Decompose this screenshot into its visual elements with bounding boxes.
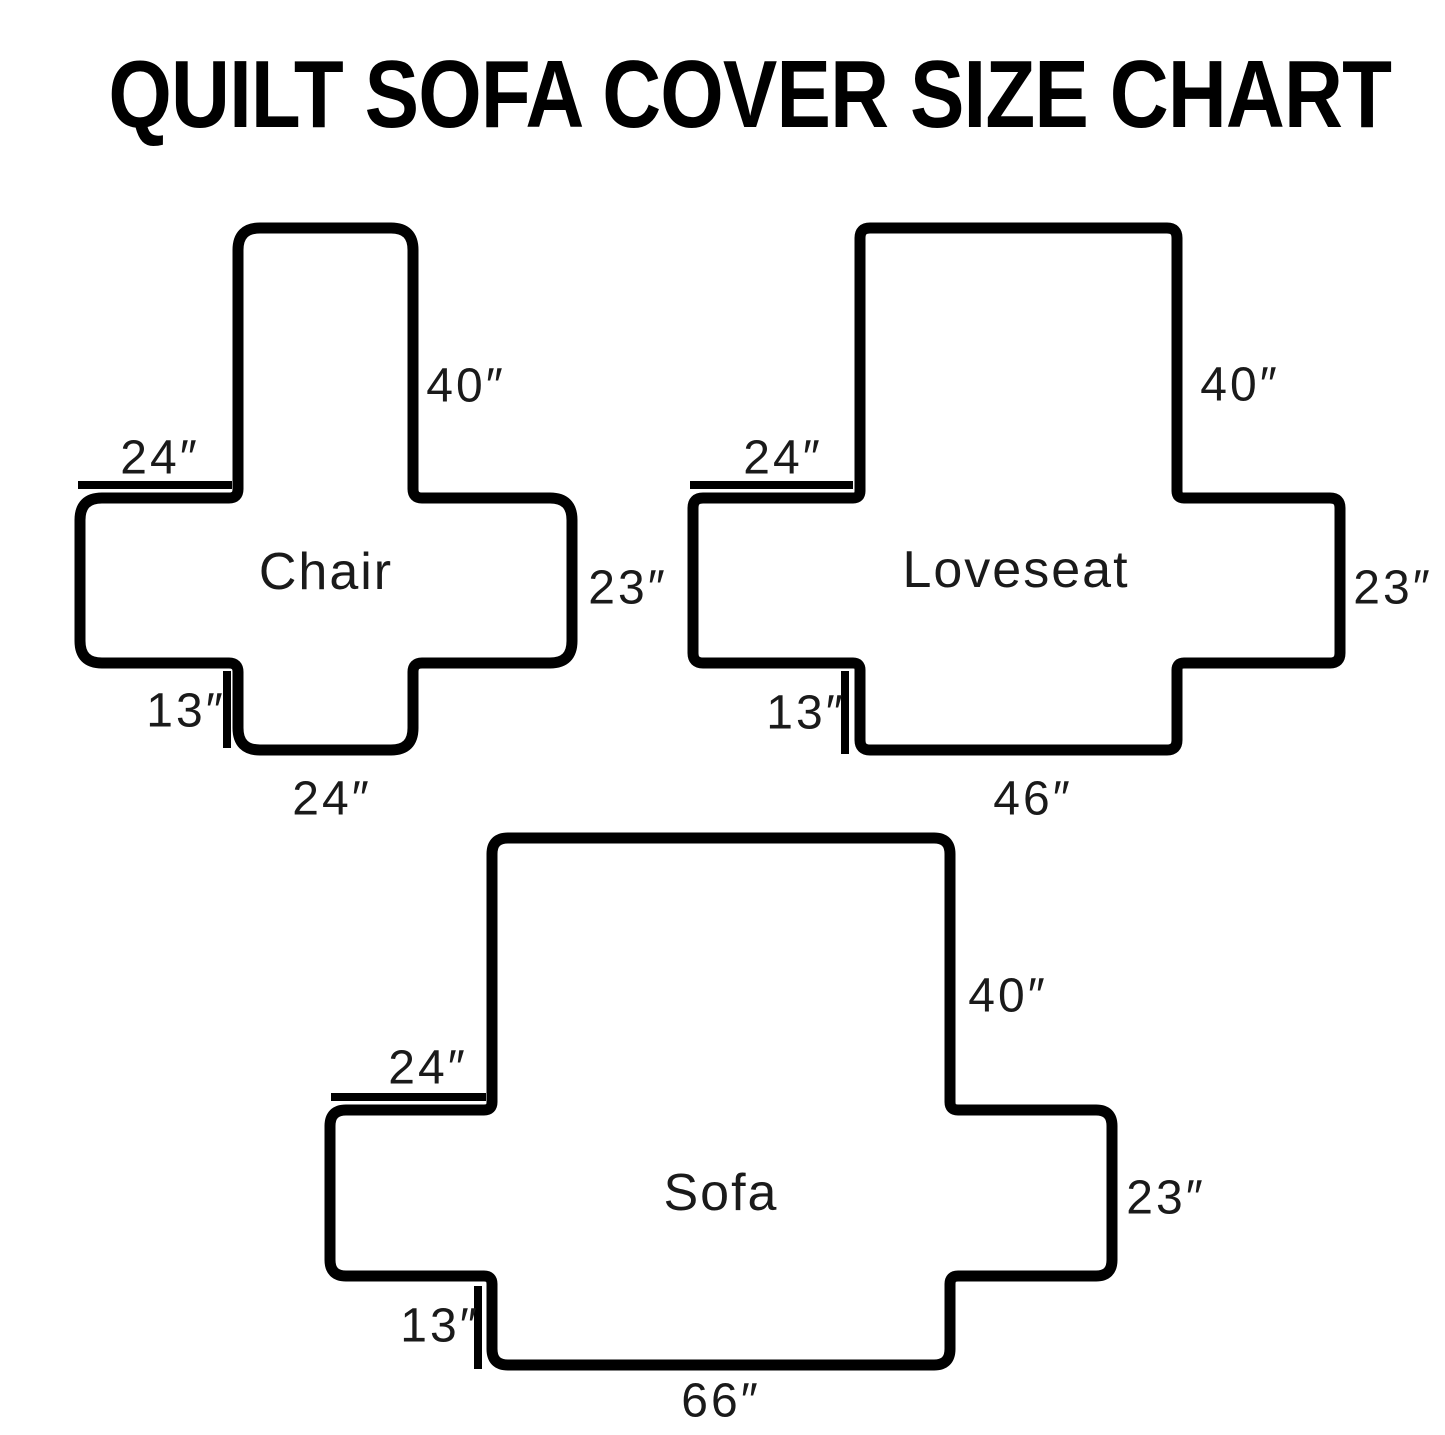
sofa-back-height-label: 40″ bbox=[968, 970, 1047, 1023]
sofa-name-label: Sofa bbox=[664, 1164, 779, 1222]
size-diagrams: 40″ 24″ Chair 23″ 13″ 24″ 40″ 24″ Lovese… bbox=[0, 0, 1445, 1435]
chair-seat-width-label: 24″ bbox=[292, 773, 371, 826]
loveseat-skirt-drop-label: 13″ bbox=[766, 687, 845, 740]
loveseat-side-height-label: 23″ bbox=[1353, 562, 1432, 615]
loveseat-arm-width-label: 24″ bbox=[743, 432, 822, 485]
size-chart-page: QUILT SOFA COVER SIZE CHART 40″ 24″ Chai… bbox=[0, 0, 1445, 1435]
loveseat-diagram: 40″ 24″ Loveseat 23″ 13″ 46″ bbox=[690, 228, 1433, 826]
chair-skirt-drop-label: 13″ bbox=[146, 685, 225, 738]
loveseat-seat-width-label: 46″ bbox=[993, 773, 1072, 826]
sofa-outline bbox=[330, 838, 1112, 1365]
chair-name-label: Chair bbox=[259, 543, 393, 601]
sofa-skirt-drop-label: 13″ bbox=[400, 1300, 479, 1353]
chair-back-height-label: 40″ bbox=[426, 360, 505, 413]
sofa-arm-width-label: 24″ bbox=[388, 1042, 467, 1095]
loveseat-back-height-label: 40″ bbox=[1200, 359, 1279, 412]
chair-diagram: 40″ 24″ Chair 23″ 13″ 24″ bbox=[78, 228, 668, 826]
chair-arm-width-label: 24″ bbox=[120, 432, 199, 485]
loveseat-name-label: Loveseat bbox=[902, 541, 1129, 599]
sofa-diagram: 40″ 24″ Sofa 23″ 13″ 66″ bbox=[330, 838, 1206, 1428]
sofa-seat-width-label: 66″ bbox=[681, 1375, 760, 1428]
chair-side-height-label: 23″ bbox=[588, 562, 667, 615]
sofa-side-height-label: 23″ bbox=[1126, 1172, 1205, 1225]
